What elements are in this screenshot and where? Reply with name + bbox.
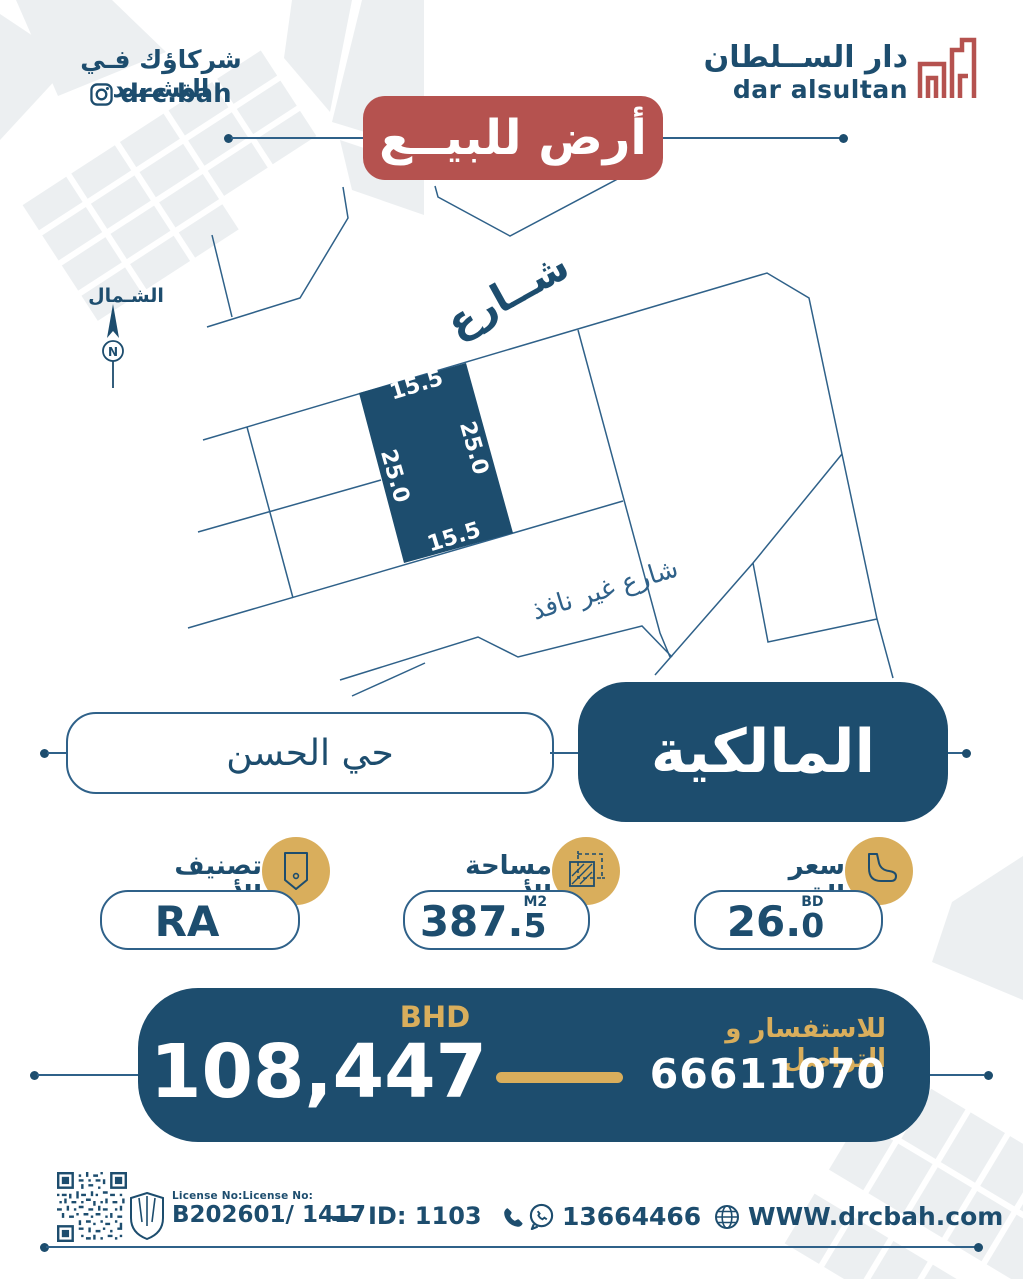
price-per-foot-label: سعر القدم (715, 851, 845, 885)
license-number: B202601/ 1417 (172, 1202, 366, 1228)
district-pill: حي الحسن (66, 712, 554, 794)
listing-id: ID: 1103 (368, 1202, 482, 1230)
connector-dot (984, 1071, 993, 1080)
footer-rule (46, 1246, 976, 1248)
connector-line (550, 752, 578, 754)
map-parcel-line (212, 235, 232, 317)
globe-icon (714, 1204, 740, 1230)
land-area-value: 387. (420, 896, 524, 948)
area-pill: المالكية (578, 682, 948, 822)
north-label: الشـمال (88, 285, 164, 307)
street-label: شــارع (439, 243, 577, 347)
divider-dash (496, 1072, 623, 1083)
license-label: License No:License No: (172, 1190, 313, 1202)
classification-label: تصنيف الأرض (100, 851, 262, 885)
qr-code (57, 1172, 127, 1242)
land-area-decimal: 5 (523, 909, 546, 942)
price-per-foot-value: 26. (727, 896, 801, 948)
classification-value: RA (155, 896, 220, 948)
price-amount: 108,447 (150, 1026, 480, 1118)
connector-dot (974, 1243, 983, 1252)
connector-line (231, 137, 363, 139)
contact-phone[interactable]: 66611070 (630, 1048, 886, 1100)
map-parcel-line (655, 454, 842, 675)
map-parcel-line (207, 187, 348, 327)
price-per-foot-decimal: 0 (801, 909, 824, 942)
price-per-foot-value-box: 26. BD 0 (694, 890, 883, 950)
tag-icon (281, 850, 311, 892)
connector-dot (839, 134, 848, 143)
license-shield-icon (130, 1192, 164, 1240)
map-parcel-line (247, 427, 293, 598)
map-parcel-line (198, 480, 381, 532)
whatsapp-icon (528, 1203, 555, 1230)
divider-dash (332, 1216, 358, 1221)
north-compass-icon: الشـمال N (88, 285, 164, 388)
connector-line (47, 752, 66, 754)
map-parcel-line (340, 626, 672, 680)
connector-line (930, 1074, 984, 1076)
instagram-icon (90, 83, 113, 106)
dead-end-street-label: شارع غير نافذ (528, 554, 681, 627)
foot-icon (859, 851, 899, 891)
brand-name-arabic: دار الســلطان (704, 40, 908, 75)
brand-logo-icon (916, 34, 980, 104)
for-sale-badge: أرض للبيــع (363, 96, 663, 180)
connector-line (37, 1074, 138, 1076)
classification-value-box: RA (100, 890, 300, 950)
footer-phone[interactable]: 13664466 (562, 1202, 701, 1231)
phone-icon (502, 1206, 524, 1228)
connector-dot (962, 749, 971, 758)
map-parcel-line (352, 663, 425, 696)
brand-name-english: dar alsultan (733, 75, 908, 104)
north-letter: N (108, 345, 118, 359)
connector-line (663, 137, 841, 139)
instagram-row[interactable]: drc.bah (30, 79, 292, 109)
area-measure-icon (566, 850, 606, 892)
flyer-canvas: 15.5 25.0 25.0 15.5 شــارع شارع غير نافذ… (0, 0, 1023, 1279)
website-url[interactable]: WWW.drcbah.com (748, 1202, 1003, 1231)
land-area-label: مساحة الأرض (410, 851, 552, 885)
land-area-value-box: 387. M2 5 (403, 890, 590, 950)
instagram-handle[interactable]: drc.bah (120, 79, 231, 109)
map-parcel-line (753, 563, 877, 642)
